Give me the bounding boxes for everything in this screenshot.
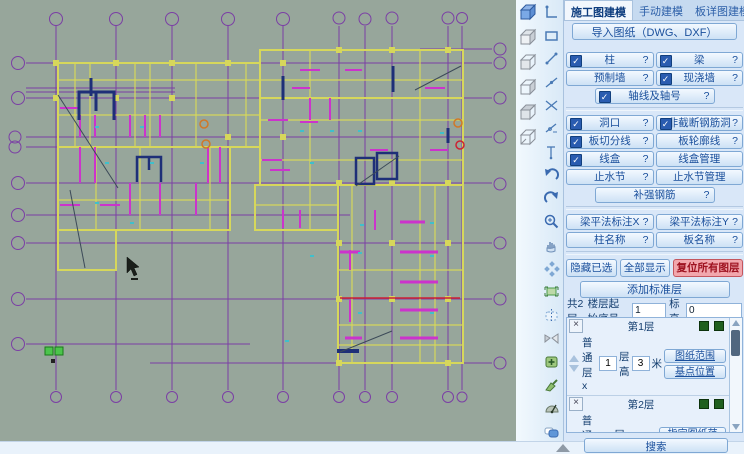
zoom-extents-icon[interactable] — [542, 283, 561, 301]
slab-name-button[interactable]: 板名称? — [656, 232, 744, 248]
drawing-range-button[interactable]: 图纸范围 — [664, 349, 726, 363]
layer-type-label: 普通层x — [582, 413, 593, 432]
layer-name[interactable]: 第1层 — [583, 319, 699, 334]
view-cube-wire-icon[interactable] — [518, 128, 537, 147]
draw-tools-column — [539, 0, 563, 441]
checkbox-opening[interactable]: ✓ — [570, 118, 582, 130]
reinforcement-button[interactable]: 补强钢筋? — [595, 187, 715, 203]
rectangle-tool-icon[interactable] — [542, 26, 561, 44]
layer-type-label: 普通层x — [582, 335, 597, 392]
import-drawing-button[interactable]: 导入图纸（DWG、DXF） — [572, 23, 737, 40]
help-icon[interactable]: ? — [704, 188, 710, 203]
move-tool-icon[interactable] — [542, 259, 561, 277]
beam-annotation-y-button[interactable]: 梁平法标注Y? — [656, 214, 744, 230]
help-icon[interactable]: ? — [643, 71, 649, 86]
checkbox-column[interactable]: ✓ — [570, 55, 582, 67]
intersect-tool-icon[interactable] — [542, 96, 561, 114]
toggle-uncut-rebar-opening-button[interactable]: ✓非截断钢筋洞? — [656, 115, 744, 131]
help-icon[interactable]: ? — [643, 53, 649, 68]
layer-name[interactable]: 第2层 — [583, 397, 699, 412]
floor-plan-drawing — [0, 0, 516, 442]
view-cube-column — [516, 0, 539, 441]
floor-plan-canvas[interactable] — [0, 0, 516, 442]
zoom-icon[interactable] — [542, 213, 561, 231]
junction-box-manage-button[interactable]: 线盒管理 — [656, 151, 744, 167]
layer-height-input[interactable] — [632, 356, 650, 371]
help-icon[interactable]: ? — [643, 116, 649, 131]
separator — [566, 251, 743, 255]
layer-color-swatch[interactable] — [699, 399, 709, 409]
help-icon[interactable]: ? — [643, 170, 649, 185]
separator — [566, 107, 743, 111]
help-icon[interactable]: ? — [732, 134, 738, 149]
unit-label: 米 — [652, 356, 663, 371]
cone-view-icon[interactable] — [542, 329, 561, 347]
delete-layer-button[interactable]: × — [569, 319, 583, 333]
help-icon[interactable]: ? — [704, 89, 710, 104]
toggle-beam-button[interactable]: ✓梁? — [656, 52, 744, 68]
section-box-icon[interactable] — [542, 306, 561, 324]
scroll-up-icon[interactable] — [732, 320, 740, 326]
layer-item-1: × 第1层 普通层x 层高 米 — [567, 318, 729, 396]
view-cube-front-icon[interactable] — [518, 53, 537, 72]
layer-item-2: × 第2层 普通层x 层高 米 — [567, 396, 729, 432]
help-icon[interactable]: ? — [732, 215, 738, 230]
search-button[interactable]: 搜索 — [584, 438, 728, 453]
base-point-button[interactable]: 基点位置 — [664, 365, 726, 379]
toggle-slab-split-line-button[interactable]: ✓板切分线? — [566, 133, 654, 149]
layer-height-label: 层高 — [614, 427, 625, 433]
trim-tool-icon[interactable] — [542, 120, 561, 138]
line-tool-icon[interactable] — [542, 50, 561, 68]
protractor-icon[interactable] — [542, 399, 561, 417]
help-icon[interactable]: ? — [732, 71, 738, 86]
spin-up-icon[interactable] — [569, 355, 579, 362]
toggle-castinplace-wall-button[interactable]: ✓现浇墙? — [656, 70, 744, 86]
view-cube-active-icon[interactable] — [518, 3, 537, 22]
waterstop-button[interactable]: 止水节? — [566, 169, 654, 185]
redo-icon[interactable] — [542, 190, 561, 208]
beam-annotation-x-button[interactable]: 梁平法标注X? — [566, 214, 654, 230]
plumb-line-icon[interactable] — [542, 143, 561, 161]
checkbox-beam[interactable]: ✓ — [660, 55, 672, 67]
waterstop-manage-button[interactable]: 止水节管理 — [656, 169, 744, 185]
toggle-opening-button[interactable]: ✓洞口? — [566, 115, 654, 131]
layer-count-input[interactable] — [599, 356, 617, 371]
help-icon[interactable]: ? — [643, 215, 649, 230]
modeling-panel: 施工图建模 手动建模 板详图建模 导入图纸（DWG、DXF） ✓柱? ✓梁? 预… — [563, 0, 744, 441]
elevation-input[interactable] — [686, 303, 742, 318]
checkbox-junction-box[interactable]: ✓ — [570, 154, 582, 166]
layer-color-swatch[interactable] — [714, 399, 724, 409]
panel-widget-icon[interactable] — [542, 423, 561, 441]
spin-down-icon[interactable] — [569, 365, 579, 372]
checkbox-axis[interactable]: ✓ — [599, 91, 611, 103]
precast-wall-button[interactable]: 预制墙? — [566, 70, 654, 86]
checkbox-wall[interactable]: ✓ — [660, 73, 672, 85]
tab-construction-drawing-modeling[interactable]: 施工图建模 — [564, 0, 633, 20]
slab-outline-button[interactable]: 板轮廓线? — [656, 133, 744, 149]
help-icon[interactable]: ? — [643, 233, 649, 248]
view-cube-side-icon[interactable] — [518, 78, 537, 97]
layer-toggle-rows: ✓柱? ✓梁? 预制墙? ✓现浇墙? ✓轴线及轴号? ✓洞口? ✓非截断钢筋洞?… — [566, 52, 743, 321]
layer-color-swatch[interactable] — [714, 321, 724, 331]
polyline-tool-icon[interactable] — [542, 73, 561, 91]
show-all-button[interactable]: 全部显示 — [620, 259, 671, 277]
view-toolbar — [516, 0, 564, 441]
panel-scroll-up-icon[interactable] — [556, 444, 570, 452]
scroll-down-icon[interactable] — [732, 424, 740, 430]
help-icon[interactable]: ? — [643, 152, 649, 167]
layer-color-swatch[interactable] — [699, 321, 709, 331]
layer-order-spinner — [568, 355, 580, 372]
delete-layer-button[interactable]: × — [569, 397, 583, 411]
toggle-junction-box-button[interactable]: ✓线盒? — [566, 151, 654, 167]
toggle-axis-button[interactable]: ✓轴线及轴号? — [595, 88, 715, 104]
separator — [566, 206, 743, 210]
checkbox-uncut-rebar[interactable]: ✓ — [660, 118, 672, 130]
help-icon[interactable]: ? — [643, 134, 649, 149]
tab-manual-modeling[interactable]: 手动建模 — [633, 0, 689, 20]
help-icon[interactable]: ? — [732, 233, 738, 248]
help-icon[interactable]: ? — [732, 116, 738, 131]
column-name-button[interactable]: 柱名称? — [566, 232, 654, 248]
toggle-column-button[interactable]: ✓柱? — [566, 52, 654, 68]
tab-slab-detail-modeling[interactable]: 板详图建模 — [689, 0, 744, 20]
application-window: 施工图建模 手动建模 板详图建模 导入图纸（DWG、DXF） ✓柱? ✓梁? 预… — [0, 0, 744, 454]
checkbox-slab-split[interactable]: ✓ — [570, 136, 582, 148]
view-cube-iso-icon[interactable] — [518, 103, 537, 122]
axis-corner-icon[interactable] — [542, 3, 561, 21]
layer-height-label: 层高 — [619, 349, 630, 379]
specify-drawing-range-button[interactable]: 指定图纸范围 — [659, 427, 726, 433]
start-index-input[interactable] — [632, 303, 666, 318]
paint-brush-icon[interactable] — [542, 376, 561, 394]
help-icon[interactable]: ? — [732, 53, 738, 68]
standard-layer-list: × 第1层 普通层x 层高 米 — [566, 317, 743, 433]
undo-icon[interactable] — [542, 166, 561, 184]
mode-tabbar: 施工图建模 手动建模 板详图建模 — [564, 0, 744, 21]
add-component-icon[interactable] — [542, 353, 561, 371]
hide-selected-button[interactable]: 隐藏已选 — [566, 259, 617, 277]
view-cube-top-icon[interactable] — [518, 28, 537, 47]
layer-list-scrollbar[interactable] — [729, 318, 742, 432]
scrollbar-thumb[interactable] — [731, 330, 740, 356]
pan-hand-icon[interactable] — [542, 236, 561, 254]
reset-all-layers-button[interactable]: 复位所有图层 — [673, 259, 743, 277]
